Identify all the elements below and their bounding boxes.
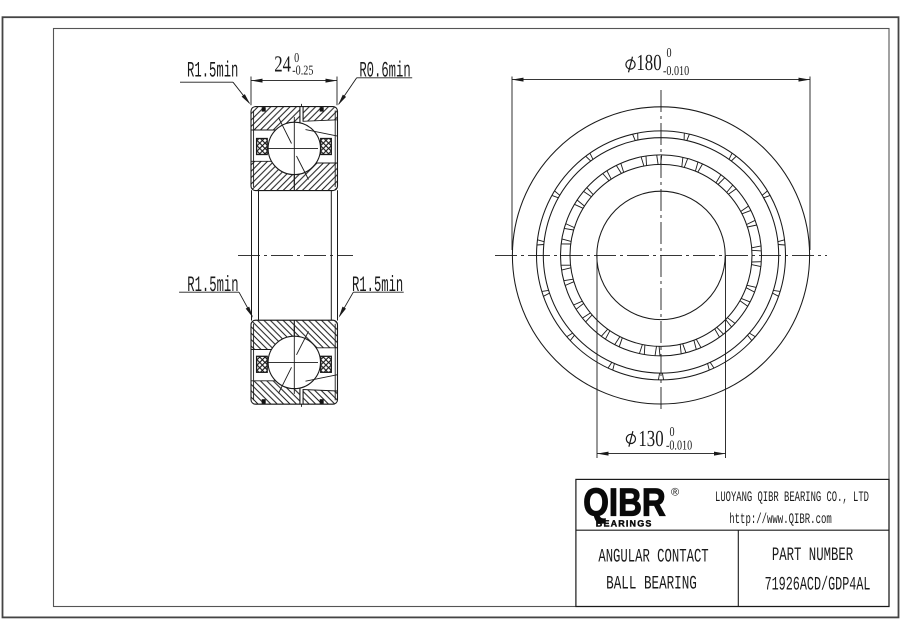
svg-text:24: 24 — [274, 52, 291, 77]
svg-text:180: 180 — [636, 50, 661, 75]
svg-text:R1.5min: R1.5min — [187, 59, 238, 84]
svg-text:PART NUMBER: PART NUMBER — [772, 544, 853, 566]
svg-text:BALL BEARING: BALL BEARING — [606, 573, 697, 595]
svg-text:BEARINGS: BEARINGS — [596, 519, 653, 529]
svg-text:http://www.QIBR.com: http://www.QIBR.com — [729, 512, 832, 528]
svg-text:R1.5min: R1.5min — [187, 273, 238, 298]
svg-text:LUOYANG QIBR BEARING CO., LTD: LUOYANG QIBR BEARING CO., LTD — [715, 490, 869, 506]
svg-text:R0.6min: R0.6min — [359, 59, 410, 84]
svg-text:-0.010: -0.010 — [666, 438, 692, 453]
svg-text:130: 130 — [638, 426, 663, 451]
svg-text:0: 0 — [666, 45, 671, 60]
svg-text:71926ACD/GDP4AL: 71926ACD/GDP4AL — [765, 574, 871, 596]
svg-text:-0.010: -0.010 — [663, 63, 689, 78]
svg-text:®: ® — [671, 487, 679, 499]
svg-text:R1.5min: R1.5min — [352, 273, 403, 298]
svg-text:ANGULAR CONTACT: ANGULAR CONTACT — [598, 546, 708, 568]
svg-text:-0.25: -0.25 — [292, 63, 313, 78]
